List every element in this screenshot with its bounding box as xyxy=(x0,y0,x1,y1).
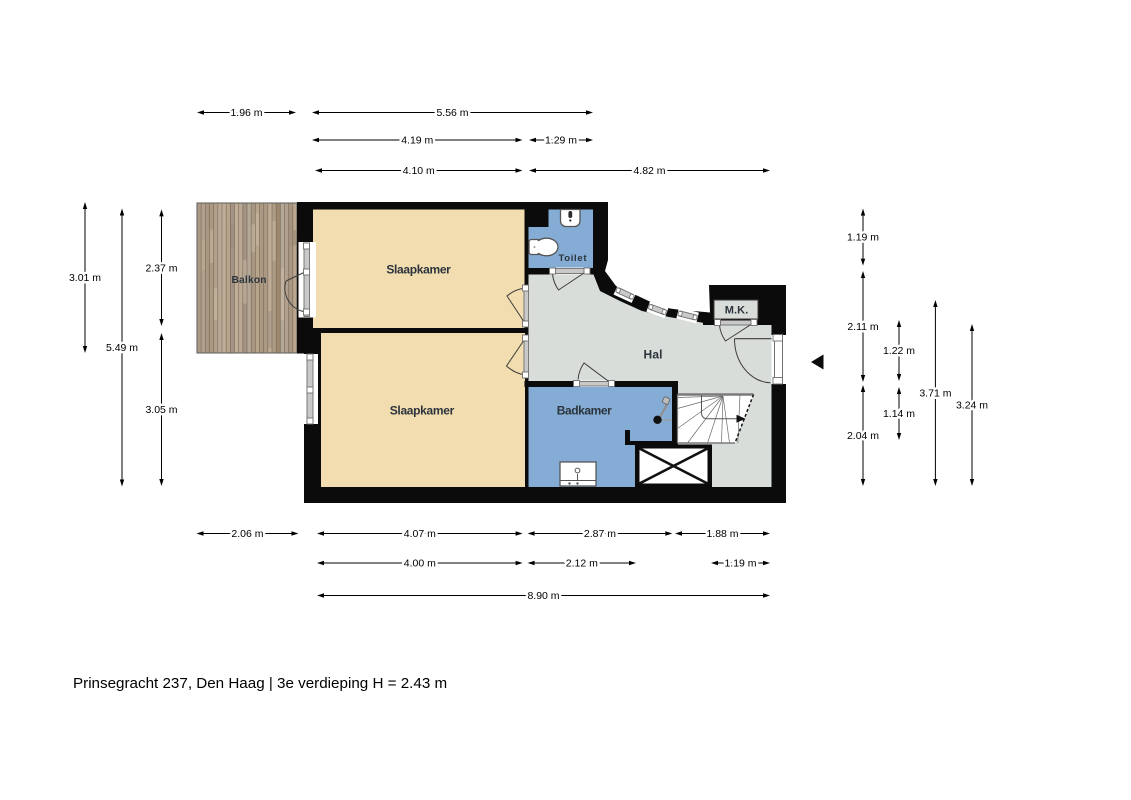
svg-text:3.71 m: 3.71 m xyxy=(919,388,951,400)
svg-text:2.04 m: 2.04 m xyxy=(847,430,879,442)
svg-text:Badkamer: Badkamer xyxy=(557,404,612,418)
svg-text:M.K.: M.K. xyxy=(725,305,749,317)
svg-text:1.96 m: 1.96 m xyxy=(230,107,262,119)
svg-text:2.37 m: 2.37 m xyxy=(145,262,177,274)
svg-text:4.00 m: 4.00 m xyxy=(404,558,436,570)
svg-text:Hal: Hal xyxy=(644,348,663,362)
svg-text:4.82 m: 4.82 m xyxy=(633,165,665,177)
svg-text:2.12 m: 2.12 m xyxy=(566,558,598,570)
svg-text:1.88 m: 1.88 m xyxy=(706,528,738,540)
svg-text:2.06 m: 2.06 m xyxy=(231,528,263,540)
svg-text:4.10 m: 4.10 m xyxy=(403,165,435,177)
svg-text:2.11 m: 2.11 m xyxy=(847,321,879,333)
svg-text:3.05 m: 3.05 m xyxy=(145,404,177,416)
svg-text:2.87 m: 2.87 m xyxy=(584,528,616,540)
svg-text:1.14 m: 1.14 m xyxy=(883,408,915,420)
svg-text:5.49 m: 5.49 m xyxy=(106,342,138,354)
svg-text:Slaapkamer: Slaapkamer xyxy=(386,262,451,276)
svg-text:Balkon: Balkon xyxy=(232,275,267,286)
svg-text:1.19 m: 1.19 m xyxy=(724,558,756,570)
svg-text:Prinsegracht 237, Den Haag | 3: Prinsegracht 237, Den Haag | 3e verdiepi… xyxy=(73,675,447,692)
svg-text:Toilet: Toilet xyxy=(559,253,588,264)
svg-text:1.29 m: 1.29 m xyxy=(545,135,577,147)
svg-text:3.01 m: 3.01 m xyxy=(69,272,101,284)
svg-text:1.22 m: 1.22 m xyxy=(883,345,915,357)
svg-text:3.24 m: 3.24 m xyxy=(956,400,988,412)
svg-text:4.19 m: 4.19 m xyxy=(401,135,433,147)
svg-text:Slaapkamer: Slaapkamer xyxy=(390,404,455,418)
svg-text:8.90 m: 8.90 m xyxy=(527,590,559,602)
svg-text:4.07 m: 4.07 m xyxy=(404,528,436,540)
svg-text:5.56 m: 5.56 m xyxy=(436,107,468,119)
svg-text:1.19 m: 1.19 m xyxy=(847,232,879,244)
